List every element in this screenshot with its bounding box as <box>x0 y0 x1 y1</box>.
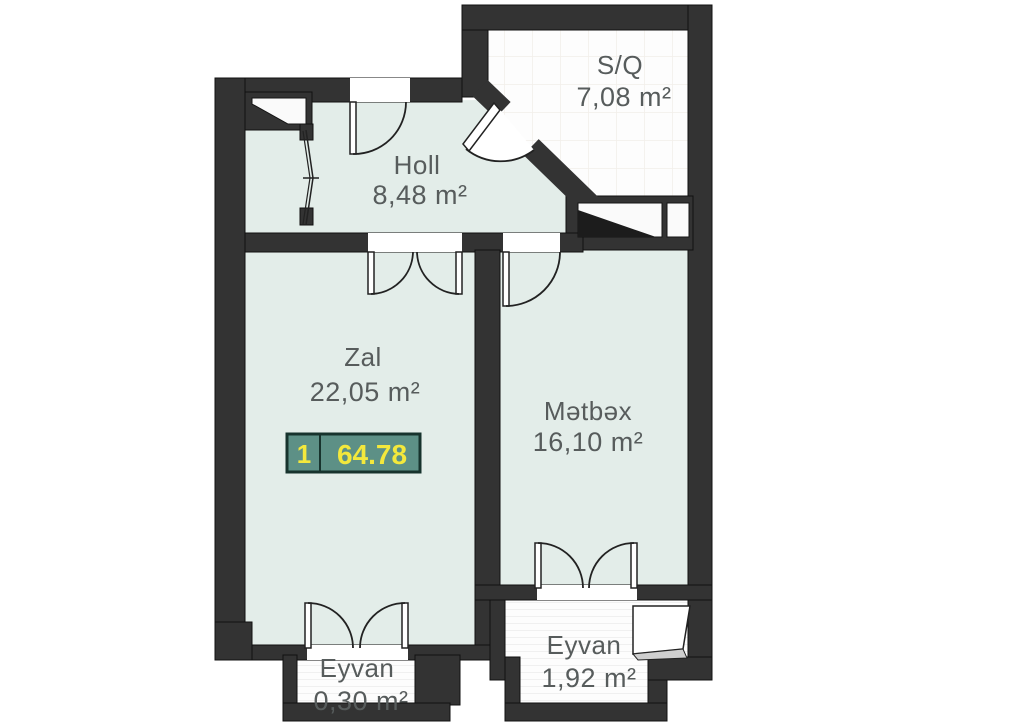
room-area: 7,08 m² <box>576 82 671 112</box>
wall-segment <box>505 703 667 721</box>
unit-total-area: 64.78 <box>337 439 407 470</box>
opening-holl-kitchen <box>503 233 560 252</box>
door-leaf <box>503 252 509 306</box>
room-area: 22,05 m² <box>310 377 421 407</box>
room-area: 1,92 m² <box>541 663 636 693</box>
wall-segment <box>215 78 245 660</box>
door-leaf <box>350 102 356 154</box>
wall-segment <box>648 657 712 680</box>
wall-segment <box>688 5 712 680</box>
room-area: 16,10 m² <box>533 427 644 457</box>
door-leaf <box>305 603 311 648</box>
shaft-symbol <box>667 203 689 237</box>
room-name: Eyvan <box>547 630 622 660</box>
window-sill-symbol <box>633 606 690 654</box>
room-name: Zal <box>344 342 382 372</box>
opening-holl-zal <box>368 233 462 252</box>
door-leaf <box>535 543 541 588</box>
unit-number: 1 <box>297 439 311 469</box>
door-leaf <box>456 252 462 294</box>
door-leaf <box>368 252 374 294</box>
door-leaf <box>631 543 637 588</box>
room-area: 0,30 m² <box>313 686 408 716</box>
wall-segment <box>490 600 505 680</box>
wall-segment <box>415 655 460 705</box>
room-label-metbex: Mətbəx 16,10 m² <box>533 396 644 457</box>
room-area: 8,48 m² <box>372 180 467 210</box>
opening-kitchen-balcony <box>537 585 637 600</box>
floorplan-svg: S/Q 7,08 m² Holl 8,48 m² Zal 22,05 m² Mə… <box>0 0 1024 724</box>
opening-entrance <box>350 78 410 102</box>
room-name: Eyvan <box>320 653 395 683</box>
room-name: S/Q <box>597 50 643 80</box>
door-leaf <box>402 603 408 648</box>
floorplan-canvas: S/Q 7,08 m² Holl 8,48 m² Zal 22,05 m² Mə… <box>0 0 1024 724</box>
wall-segment <box>462 5 712 30</box>
balcony-corner-symbol <box>633 606 690 660</box>
room-name: Holl <box>394 150 441 180</box>
room-name: Mətbəx <box>544 396 632 426</box>
unit-badge[interactable]: 1 64.78 <box>287 434 420 472</box>
wall-segment <box>215 622 252 660</box>
